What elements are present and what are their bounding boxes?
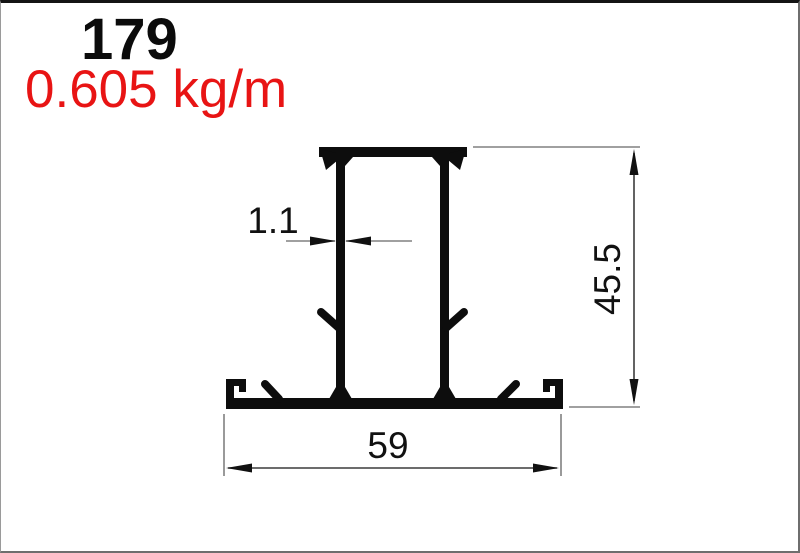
right-wall-bottom-fillet-outer	[449, 387, 456, 399]
left-wall-bottom-fillet-outer	[329, 387, 336, 399]
base-right-hook	[543, 379, 563, 399]
right-wall-bottom-fillet-inner	[433, 387, 440, 399]
left-wall-top-fillet	[345, 157, 353, 166]
dim-wall-thickness: 1.1	[247, 200, 412, 246]
dim-width: 59	[224, 414, 561, 476]
height-arrow-down	[630, 379, 639, 405]
thickness-arrow-left-pointing	[345, 237, 371, 246]
thickness-label: 1.1	[247, 200, 298, 241]
profile-right-wall	[440, 153, 449, 400]
width-label: 59	[367, 425, 408, 466]
height-label: 45.5	[587, 243, 628, 315]
drawing-sheet: 179 0.605 kg/m	[0, 0, 800, 553]
dim-height: 45.5	[473, 147, 640, 407]
profile-cross-section-drawing: 1.1 45.5 59	[1, 3, 800, 553]
base-left-stub	[265, 384, 279, 399]
base-right-stub	[501, 384, 516, 399]
profile-shape	[226, 147, 563, 409]
left-wall-bottom-fillet-inner	[345, 387, 352, 399]
width-arrow-left	[226, 464, 252, 473]
base-left-hook	[226, 379, 246, 399]
thickness-arrow-right-pointing	[310, 237, 336, 246]
profile-left-wall	[336, 153, 345, 400]
right-wall-top-fillet	[432, 157, 440, 166]
height-arrow-up	[630, 149, 639, 175]
width-arrow-right	[533, 464, 559, 473]
